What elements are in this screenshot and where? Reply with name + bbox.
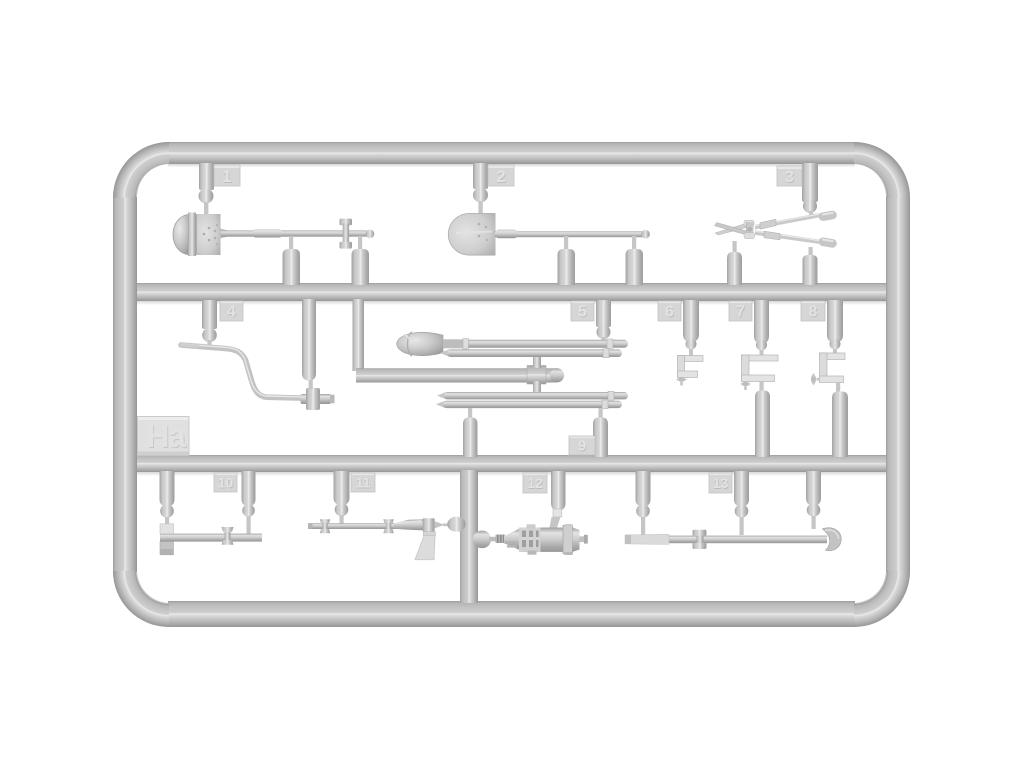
svg-text:11: 11 (356, 475, 371, 491)
svg-text:12: 12 (527, 475, 543, 491)
svg-text:9: 9 (578, 438, 586, 455)
svg-text:5: 5 (578, 304, 587, 321)
svg-text:4: 4 (227, 304, 236, 321)
svg-text:2: 2 (496, 167, 505, 186)
svg-text:1: 1 (222, 167, 231, 186)
svg-text:8: 8 (809, 304, 818, 321)
svg-text:Ha: Ha (146, 418, 186, 454)
svg-text:6: 6 (665, 304, 674, 321)
svg-text:3: 3 (785, 169, 794, 186)
svg-text:10: 10 (218, 475, 234, 491)
svg-text:7: 7 (736, 304, 745, 321)
svg-text:13: 13 (713, 475, 729, 491)
